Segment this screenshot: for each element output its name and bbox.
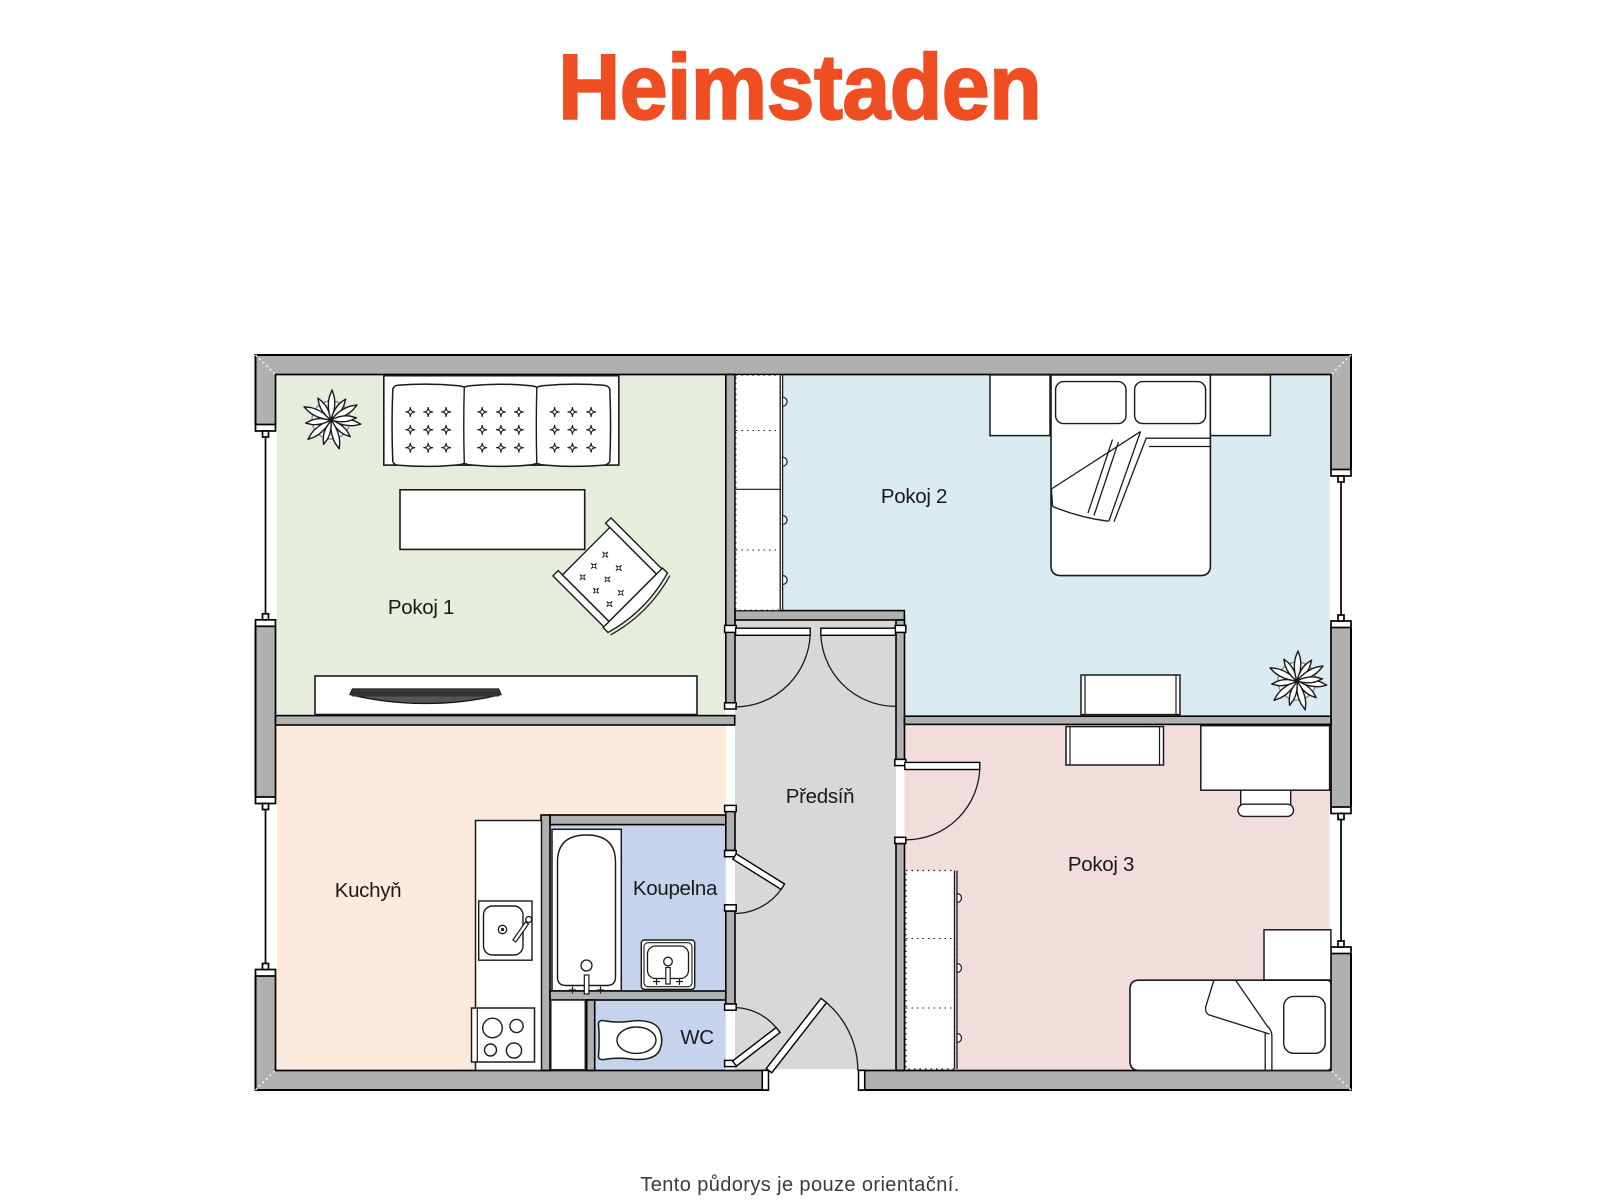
svg-text:Tento půdorys je pouze orienta: Tento půdorys je pouze orientační. xyxy=(640,1174,959,1196)
svg-text:Heimstaden: Heimstaden xyxy=(559,37,1042,139)
svg-text:Pokoj 3: Pokoj 3 xyxy=(1068,853,1134,876)
svg-text:Koupelna: Koupelna xyxy=(633,877,718,900)
svg-text:WC: WC xyxy=(680,1026,714,1049)
svg-text:Kuchyň: Kuchyň xyxy=(335,879,402,902)
svg-text:Pokoj 1: Pokoj 1 xyxy=(388,596,454,619)
svg-text:Pokoj 2: Pokoj 2 xyxy=(881,485,947,508)
svg-text:Předsíň: Předsíň xyxy=(786,785,855,808)
